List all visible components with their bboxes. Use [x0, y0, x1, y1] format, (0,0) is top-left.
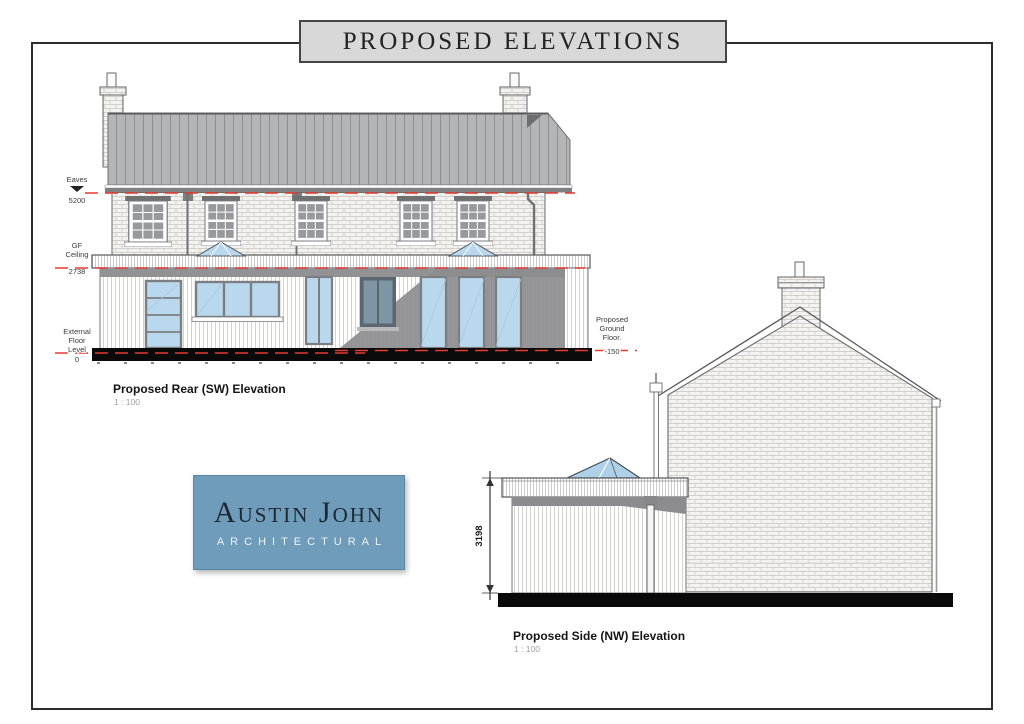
page-title: PROPOSED ELEVATIONS — [343, 28, 684, 56]
rear-elevation-caption: Proposed Rear (SW) Elevation — [113, 382, 286, 396]
sash-window-3 — [291, 196, 331, 246]
logo-subtitle: ARCHITECTURAL — [211, 536, 387, 548]
floor-label-2: Floor — [68, 336, 86, 345]
side-elevation-caption: Proposed Side (NW) Elevation — [513, 629, 685, 643]
sash-window-5 — [453, 196, 493, 246]
dimension-value: 3198 — [474, 525, 485, 546]
eaves-label: Eaves — [67, 175, 88, 184]
sash-window-4 — [396, 196, 436, 246]
logo-name: Austin John — [214, 498, 384, 528]
rear-shadow-window — [357, 277, 399, 331]
side-elevation-drawing: 3198 Proposed Side (NW) Elevation 1 : 10… — [470, 255, 980, 665]
floor-value: 0 — [75, 355, 79, 364]
gf-ceiling-label-1: GF — [72, 241, 83, 250]
rear-eaves-fascia — [105, 185, 572, 188]
eaves-value: 5200 — [69, 196, 86, 205]
title-banner: PROPOSED ELEVATIONS — [299, 20, 727, 63]
side-plinth — [498, 593, 953, 607]
floor-label-3: Level — [68, 345, 86, 354]
side-gable-wall — [668, 316, 932, 592]
rear-roof — [108, 113, 570, 185]
gf-ceiling-label-2: Ceiling — [66, 250, 89, 259]
logo-austin-john: Austin John ARCHITECTURAL — [193, 475, 405, 570]
rear-elevation-scale: 1 : 100 — [114, 397, 140, 407]
gf-wide-window — [196, 282, 279, 317]
side-height-dimension: 3198 — [474, 471, 502, 600]
gf-ceiling-value: 2738 — [69, 267, 86, 276]
sash-window-1 — [124, 196, 172, 247]
side-extension-wall — [512, 497, 686, 593]
side-right-downpipe — [932, 399, 940, 592]
floor-label-1: External — [63, 327, 91, 336]
eaves-level-marker — [70, 186, 84, 192]
side-left-downpipe — [650, 373, 662, 478]
rear-gutter — [105, 188, 572, 193]
side-rooflight-pyramid — [567, 458, 640, 478]
side-elevation-scale: 1 : 100 — [514, 644, 540, 654]
drawing-sheet: PROPOSED ELEVATIONS — [0, 0, 1024, 724]
sash-window-2 — [201, 196, 241, 246]
gf-window-sill — [192, 317, 283, 322]
